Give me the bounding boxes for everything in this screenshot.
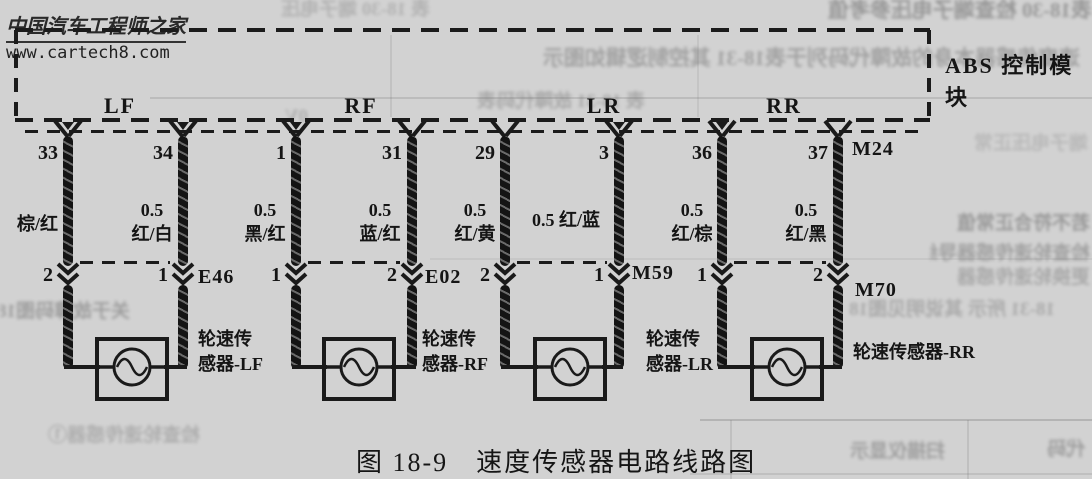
abs-module-box-top [15,28,930,32]
module-pin-number: 3 [571,142,609,165]
sensor-label-rr: 轮速传感器-RR [853,340,975,365]
module-pin-number: 29 [457,142,495,165]
twisted-wire [614,136,624,266]
bleed-line [390,35,392,117]
figure-caption: 图 18-9 速度传感器电路线路图 [356,442,756,479]
sensor-pin-number: 2 [17,264,53,287]
watermark-url: www.cartech8.com [6,43,186,63]
wheel-speed-sensor-symbol-lf [95,337,169,401]
wire-color: 红/黄 [443,222,507,246]
bleedthrough-text: 表18-30 检查端子电压参考值 [655,0,1092,24]
inline-connector-icon [284,262,308,286]
wire-size: 0.5 [348,198,412,222]
bleed-line [697,35,699,117]
inline-connector-icon [826,262,850,286]
wire-size: 0.5 [120,198,184,222]
bleed-line [700,419,1092,421]
channel-label-lr: LR [579,93,629,119]
wire-color: 红/蓝 [559,210,600,230]
wire-color-label: 0.5红/白 [120,198,184,246]
connector-id-e46: E46 [198,266,234,289]
abs-module-label: ABS 控制模块 [945,48,1092,112]
wire-color-label: 0.5红/黑 [774,198,838,246]
module-pin-number: 34 [135,142,173,165]
sensor-label-lf: 轮速传 感器-LF [198,327,263,377]
sensor-pin-number: 1 [568,264,604,287]
sensor-label-lr: 轮速传 感器-LR [646,327,713,377]
inline-connector-icon [171,262,195,286]
wire-size: 0.5 [443,198,507,222]
bleed-line [967,420,969,479]
wire-color: 红/黑 [774,222,838,246]
inline-connector-icon [56,262,80,286]
bleedthrough-text: 检查轮速传感器① [25,420,200,447]
wire-color-label: 0.5红/棕 [660,198,724,246]
twisted-wire [63,136,73,266]
wheel-speed-sensor-symbol-rf [322,337,396,401]
twisted-wire [63,285,73,369]
sensor-pin-number: 1 [245,264,281,287]
module-pin-number: 31 [364,142,402,165]
wheel-speed-sensor-symbol-rr [750,337,824,401]
sensor-pin-number: 2 [787,264,823,287]
watermark-title: 中国汽车工程师之家 [6,10,186,43]
twisted-wire [717,285,727,369]
watermark: 中国汽车工程师之家 www.cartech8.com [6,10,186,63]
wire-color-label: 0.5红/黄 [443,198,507,246]
sensor-pin-number: 1 [132,264,168,287]
wheel-speed-sensor-symbol-lr [533,337,607,401]
sensor-pin-number: 2 [361,264,397,287]
inline-connector-icon [400,262,424,286]
module-pin-number: 33 [20,142,58,165]
wire-color-label: 棕/红 [0,212,58,236]
bleedthrough-text: 若不符合正常值 [940,208,1090,235]
twisted-wire [614,285,624,369]
abs-module-box-right [927,30,931,122]
wire-size: 0.5 [774,198,838,222]
channel-label-rf: RF [336,93,386,119]
sensor-label-line: 轮速传 [646,327,713,352]
inline-connector-icon [710,262,734,286]
bleedthrough-text: 18-31 所示 其说明见图18 [575,294,1055,321]
wire-color-label: 0.5 红/蓝 [516,208,616,232]
inline-connector-icon [607,262,631,286]
wire-color-label: 0.5黑/红 [233,198,297,246]
twisted-wire [407,285,417,369]
twisted-wire [291,285,301,369]
bleedthrough-text: 代码 [995,434,1085,461]
abs-module-box-left [14,30,18,122]
bleedthrough-text: 更换轮速传感器 [925,262,1090,289]
channel-label-rr: RR [759,93,809,119]
scanned-wiring-diagram-page: 表18-30 检查端子电压参考值 表 18-30 端子电压 速度传感器本身的故障… [0,0,1092,479]
sensor-label-line: 轮速传 [422,327,488,352]
sensor-label-line: 轮速传 [198,327,263,352]
sensor-pin-number: 1 [671,264,707,287]
connector-id-e02: E02 [425,266,461,289]
sensor-label-line: 感器-LF [198,352,263,377]
connector-id-m70: M70 [855,279,897,302]
inline-connector-icon [493,262,517,286]
bleedthrough-text: 表 18-30 端子电压 [200,0,430,21]
wire-color: 红/白 [120,222,184,246]
wire-color: 黑/红 [233,222,297,246]
bleedthrough-text: 端子电压正常 [938,128,1088,155]
wire-size: 0.5 [233,198,297,222]
wire-color: 蓝/红 [348,222,412,246]
twisted-wire [500,285,510,369]
module-pin-number: 37 [790,142,828,165]
bleedthrough-text: 扫描仪显示 [775,436,945,463]
bleedthrough-text: 速度传感器本身的故障代码列于表18-31 其控制逻辑如图示 [150,42,1080,72]
bleed-line [430,258,1092,260]
bleedthrough-text: 检查轮速传感器导线 [930,238,1090,265]
sensor-label-line: 感器-RF [422,352,488,377]
wire-size: 0.5 [532,210,555,230]
twisted-wire [178,285,188,369]
module-pin-number: 1 [248,142,286,165]
module-pin-number: 36 [674,142,712,165]
sensor-label-rf: 轮速传 感器-RF [422,327,488,377]
sensor-label-line: 感器-LR [646,352,713,377]
wire-color-label: 0.5蓝/红 [348,198,412,246]
twisted-wire [833,285,843,369]
channel-label-lf: LF [95,93,145,119]
module-connector-dashed-line [25,130,918,133]
module-connector-id: M24 [852,138,894,161]
wire-size: 0.5 [660,198,724,222]
connector-id-m59: M59 [632,262,674,285]
wire-color: 红/棕 [660,222,724,246]
